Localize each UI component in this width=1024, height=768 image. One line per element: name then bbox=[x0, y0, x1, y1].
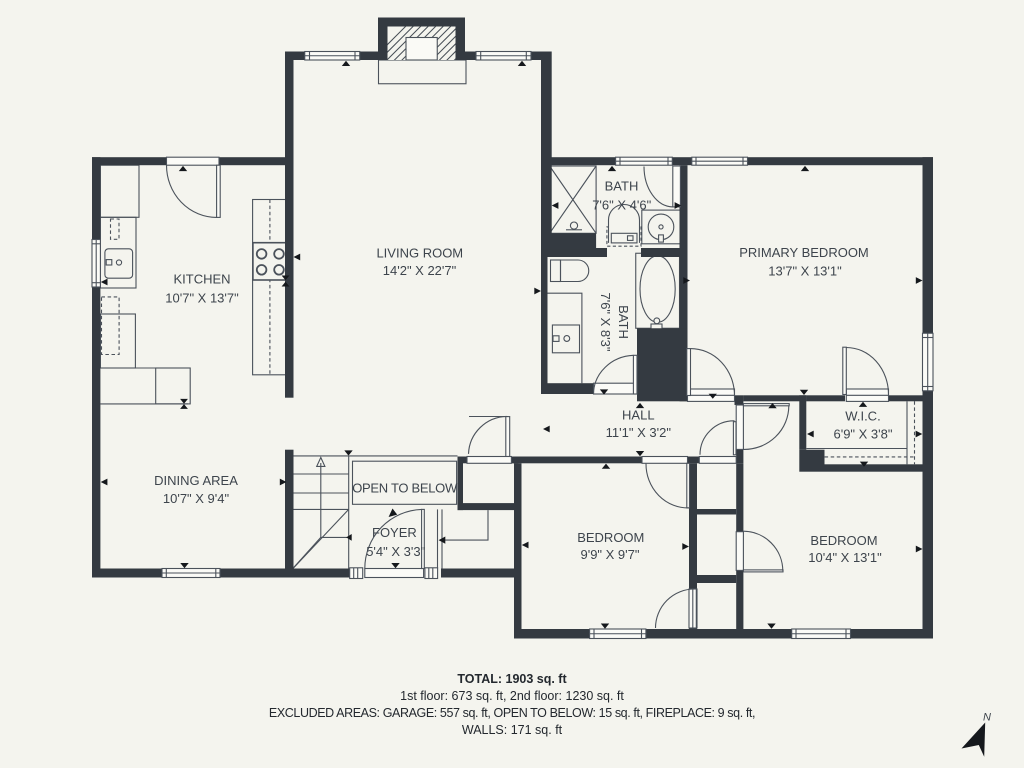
svg-text:HALL: HALL bbox=[622, 407, 655, 422]
svg-text:10'4" X 13'1": 10'4" X 13'1" bbox=[808, 550, 882, 565]
svg-text:BEDROOM: BEDROOM bbox=[577, 530, 644, 545]
svg-text:9'9" X 9'7": 9'9" X 9'7" bbox=[580, 547, 639, 562]
svg-text:BEDROOM: BEDROOM bbox=[810, 533, 877, 548]
svg-text:OPEN TO BELOW: OPEN TO BELOW bbox=[352, 481, 458, 496]
svg-text:DINING AREA: DINING AREA bbox=[154, 473, 238, 488]
svg-text:WALLS: 171 sq. ft: WALLS: 171 sq. ft bbox=[462, 723, 563, 737]
svg-text:10'7" X 13'7": 10'7" X 13'7" bbox=[165, 290, 239, 305]
svg-text:LIVING ROOM: LIVING ROOM bbox=[376, 246, 463, 261]
svg-text:1st floor: 673 sq. ft, 2nd flo: 1st floor: 673 sq. ft, 2nd floor: 1230 s… bbox=[400, 689, 624, 703]
svg-text:EXCLUDED AREAS: GARAGE: 557 sq: EXCLUDED AREAS: GARAGE: 557 sq. ft, OPEN… bbox=[269, 706, 755, 720]
svg-text:14'2" X 22'7": 14'2" X 22'7" bbox=[383, 263, 457, 278]
svg-text:BATH: BATH bbox=[616, 305, 631, 339]
svg-text:5'4" X 3'3": 5'4" X 3'3" bbox=[366, 544, 425, 559]
svg-text:6'9" X 3'8": 6'9" X 3'8" bbox=[833, 426, 892, 441]
svg-text:W.I.C.: W.I.C. bbox=[845, 409, 880, 424]
svg-text:TOTAL: 1903 sq. ft: TOTAL: 1903 sq. ft bbox=[457, 672, 567, 686]
svg-text:7'6" X 8'3": 7'6" X 8'3" bbox=[598, 292, 613, 351]
svg-text:10'7" X 9'4": 10'7" X 9'4" bbox=[163, 491, 230, 506]
svg-text:BATH: BATH bbox=[605, 178, 639, 193]
svg-text:KITCHEN: KITCHEN bbox=[173, 271, 230, 286]
svg-text:N: N bbox=[983, 712, 991, 724]
svg-text:FOYER: FOYER bbox=[372, 525, 417, 540]
svg-text:11'1" X 3'2": 11'1" X 3'2" bbox=[606, 425, 672, 440]
svg-text:PRIMARY BEDROOM: PRIMARY BEDROOM bbox=[739, 245, 869, 260]
svg-text:13'7" X 13'1": 13'7" X 13'1" bbox=[768, 263, 842, 278]
svg-text:7'6" X 4'6": 7'6" X 4'6" bbox=[592, 197, 651, 212]
